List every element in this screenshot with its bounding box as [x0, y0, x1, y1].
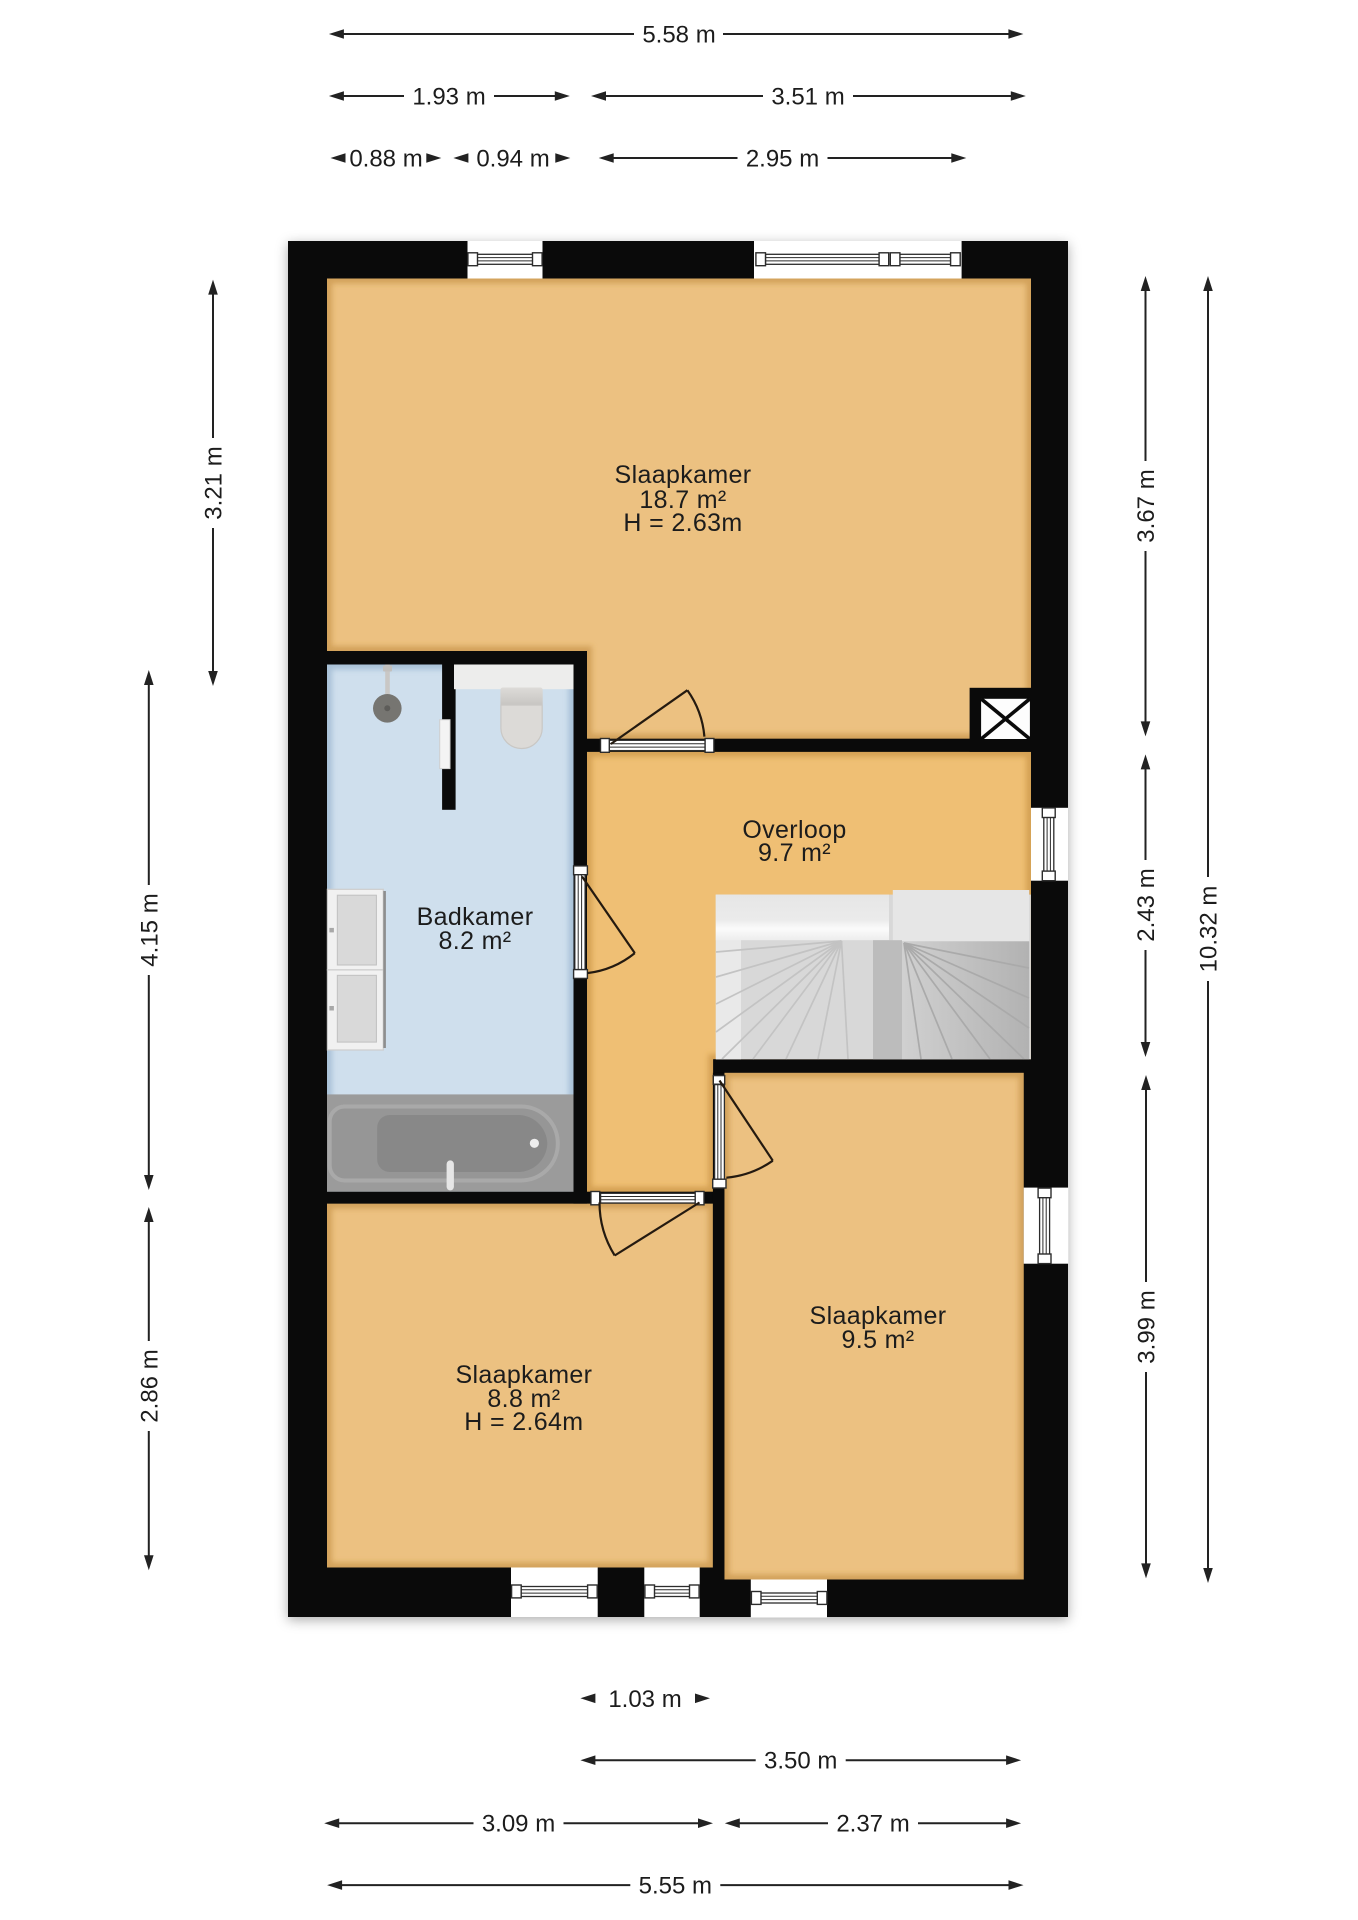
svg-text:10.32 m: 10.32 m [1196, 886, 1223, 973]
svg-text:Slaapkamer: Slaapkamer [615, 461, 752, 489]
svg-text:2.43 m: 2.43 m [1133, 868, 1160, 941]
svg-text:2.95 m: 2.95 m [746, 146, 819, 173]
svg-text:8.2 m²: 8.2 m² [439, 927, 512, 955]
svg-text:3.09 m: 3.09 m [482, 1811, 555, 1838]
svg-text:3.21 m: 3.21 m [201, 446, 228, 519]
svg-text:4.15 m: 4.15 m [136, 893, 163, 966]
svg-text:H = 2.64m: H = 2.64m [464, 1408, 583, 1436]
svg-text:2.86 m: 2.86 m [136, 1349, 163, 1422]
svg-text:3.99 m: 3.99 m [1134, 1290, 1161, 1363]
svg-text:1.03 m: 1.03 m [608, 1686, 681, 1713]
svg-text:H = 2.63m: H = 2.63m [623, 509, 742, 537]
svg-text:9.7 m²: 9.7 m² [758, 839, 831, 867]
svg-text:5.55 m: 5.55 m [639, 1873, 712, 1900]
svg-text:0.94 m: 0.94 m [476, 146, 549, 173]
svg-text:0.88 m: 0.88 m [349, 146, 422, 173]
svg-text:3.50 m: 3.50 m [764, 1748, 837, 1775]
svg-text:3.67 m: 3.67 m [1133, 469, 1160, 542]
svg-text:3.51 m: 3.51 m [771, 84, 844, 111]
svg-text:2.37 m: 2.37 m [836, 1811, 909, 1838]
svg-text:1.93 m: 1.93 m [412, 84, 485, 111]
svg-text:9.5 m²: 9.5 m² [842, 1326, 915, 1354]
svg-text:5.58 m: 5.58 m [642, 22, 715, 49]
